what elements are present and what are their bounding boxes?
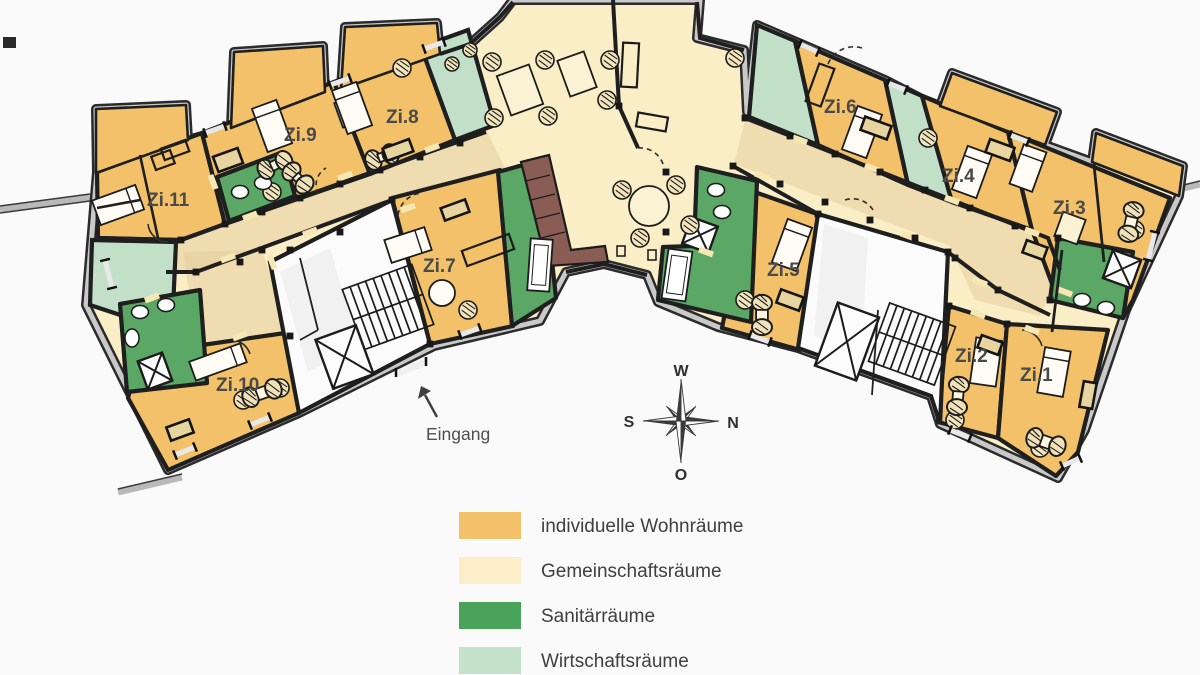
- svg-text:N: N: [727, 415, 739, 432]
- svg-text:Zi.7: Zi.7: [423, 256, 456, 277]
- svg-text:Zi.4: Zi.4: [942, 166, 975, 187]
- svg-text:Zi.9: Zi.9: [284, 125, 317, 146]
- svg-text:Zi.8: Zi.8: [386, 107, 419, 128]
- svg-text:individuelle Wohnräume: individuelle Wohnräume: [541, 516, 743, 537]
- svg-text:W: W: [673, 363, 689, 380]
- svg-text:Zi.1: Zi.1: [1020, 365, 1053, 386]
- svg-text:Zi.5: Zi.5: [767, 260, 800, 281]
- svg-text:Sanitärräume: Sanitärräume: [541, 606, 655, 627]
- svg-text:Zi.11: Zi.11: [147, 190, 190, 211]
- svg-text:S: S: [624, 414, 635, 431]
- svg-text:Zi.6: Zi.6: [824, 97, 857, 118]
- svg-text:Wirtschaftsräume: Wirtschaftsräume: [541, 651, 689, 672]
- svg-text:O: O: [675, 467, 687, 484]
- svg-text:Gemeinschaftsräume: Gemeinschaftsräume: [541, 561, 722, 582]
- svg-text:Zi.2: Zi.2: [955, 346, 988, 367]
- svg-text:Zi.10: Zi.10: [216, 375, 259, 396]
- svg-text:Zi.3: Zi.3: [1053, 198, 1086, 219]
- svg-text:Eingang: Eingang: [426, 424, 490, 444]
